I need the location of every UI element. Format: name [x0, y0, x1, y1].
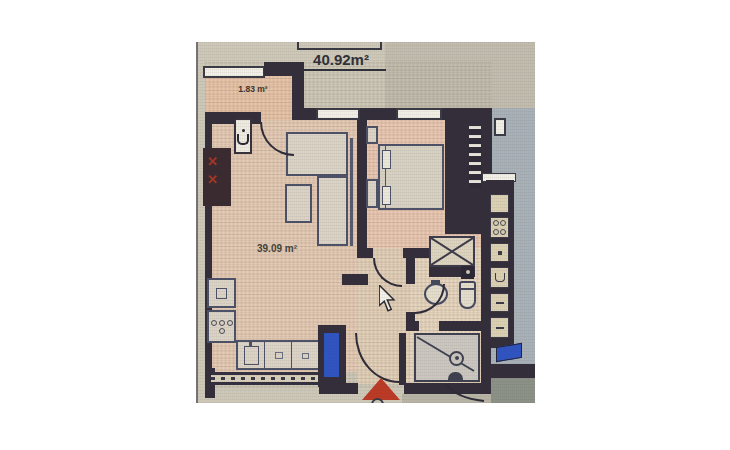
bath-shower-wall-b [439, 321, 486, 331]
living-window [316, 108, 360, 120]
neighbor-cabinet [490, 194, 509, 213]
toilet [459, 281, 476, 309]
kitchen-window-band [211, 372, 319, 385]
top-wall-mid [360, 108, 396, 120]
kitchen-counter [236, 340, 320, 370]
burner-icon [219, 328, 225, 334]
mouse-cursor-icon [379, 285, 397, 313]
wardrobe [429, 236, 475, 267]
sink-basin-icon [495, 273, 505, 282]
living-area-label: 39.09 m² [240, 243, 314, 254]
bed [378, 144, 444, 210]
shower-diagonal [416, 335, 477, 379]
burner-icon [500, 229, 506, 235]
bath-left-wall [406, 248, 415, 284]
neighbor-drawer [490, 317, 509, 338]
shower-tray [414, 333, 480, 382]
partition-end-cap [342, 274, 368, 285]
balcony-bottom-wall [205, 112, 261, 124]
window-dashes [211, 377, 319, 380]
kitchen-sink-icon [244, 346, 259, 365]
neighbor-drawer [490, 293, 509, 312]
electrical-panel-block: ✕ ✕ [203, 148, 231, 206]
screenshot-page: 40.92m² 1.83 m² ✕ ✕ [0, 0, 730, 450]
burner-icon [493, 229, 499, 235]
kitchen-fridge [207, 278, 236, 308]
total-area-label: 40.92m² [296, 51, 386, 71]
neighbor-door-arc [444, 384, 486, 403]
neighbor-door-slot [494, 118, 506, 136]
pillow [382, 150, 391, 169]
blue-door-panel [324, 333, 339, 377]
coffee-table [285, 184, 312, 223]
neighbor-bottom-wall [491, 364, 535, 378]
background-shade [385, 42, 535, 108]
nightstand [366, 126, 378, 144]
entrance-door-leaf [399, 333, 406, 385]
neighbor-cabinet [490, 243, 509, 262]
boiler-u-icon [237, 134, 249, 145]
burner-icon [493, 220, 499, 226]
sofa-side [317, 176, 348, 246]
shower-drain-cover [448, 372, 463, 380]
wardrobe-x-icon [431, 238, 473, 265]
neighbor-sink [490, 267, 509, 288]
pillow [382, 186, 391, 205]
bedroom-window [396, 108, 442, 120]
neighbor-lower-floor [491, 378, 535, 403]
top-wall-left [292, 108, 318, 120]
burner-icon [500, 220, 506, 226]
counter-sink-section [238, 342, 265, 368]
balcony-window [203, 66, 265, 78]
counter-section [265, 342, 292, 368]
bath-shower-wall-a [406, 321, 419, 331]
boiler-fixture [234, 118, 252, 154]
burner-icon [227, 320, 233, 326]
sofa-top [286, 132, 348, 176]
pocket-door-line [350, 138, 353, 246]
burner-icon [219, 320, 225, 326]
balcony-area-label: 1.83 m² [228, 84, 278, 94]
panel-cross-icon: ✕ [207, 154, 218, 169]
kitchen-stove [207, 310, 236, 343]
dimension-box [297, 42, 382, 50]
entrance-arrow-icon [362, 378, 400, 400]
burner-icon [211, 320, 217, 326]
neighbor-stove [490, 217, 509, 238]
water-heater [461, 266, 474, 279]
bedroom-hall-wall-a [357, 248, 373, 258]
panel-cross-icon: ✕ [207, 172, 218, 187]
shower-drain-icon [449, 351, 464, 366]
counter-section [292, 342, 318, 368]
nightstand [366, 179, 378, 208]
floorplan-photo: 40.92m² 1.83 m² ✕ ✕ [196, 42, 535, 403]
